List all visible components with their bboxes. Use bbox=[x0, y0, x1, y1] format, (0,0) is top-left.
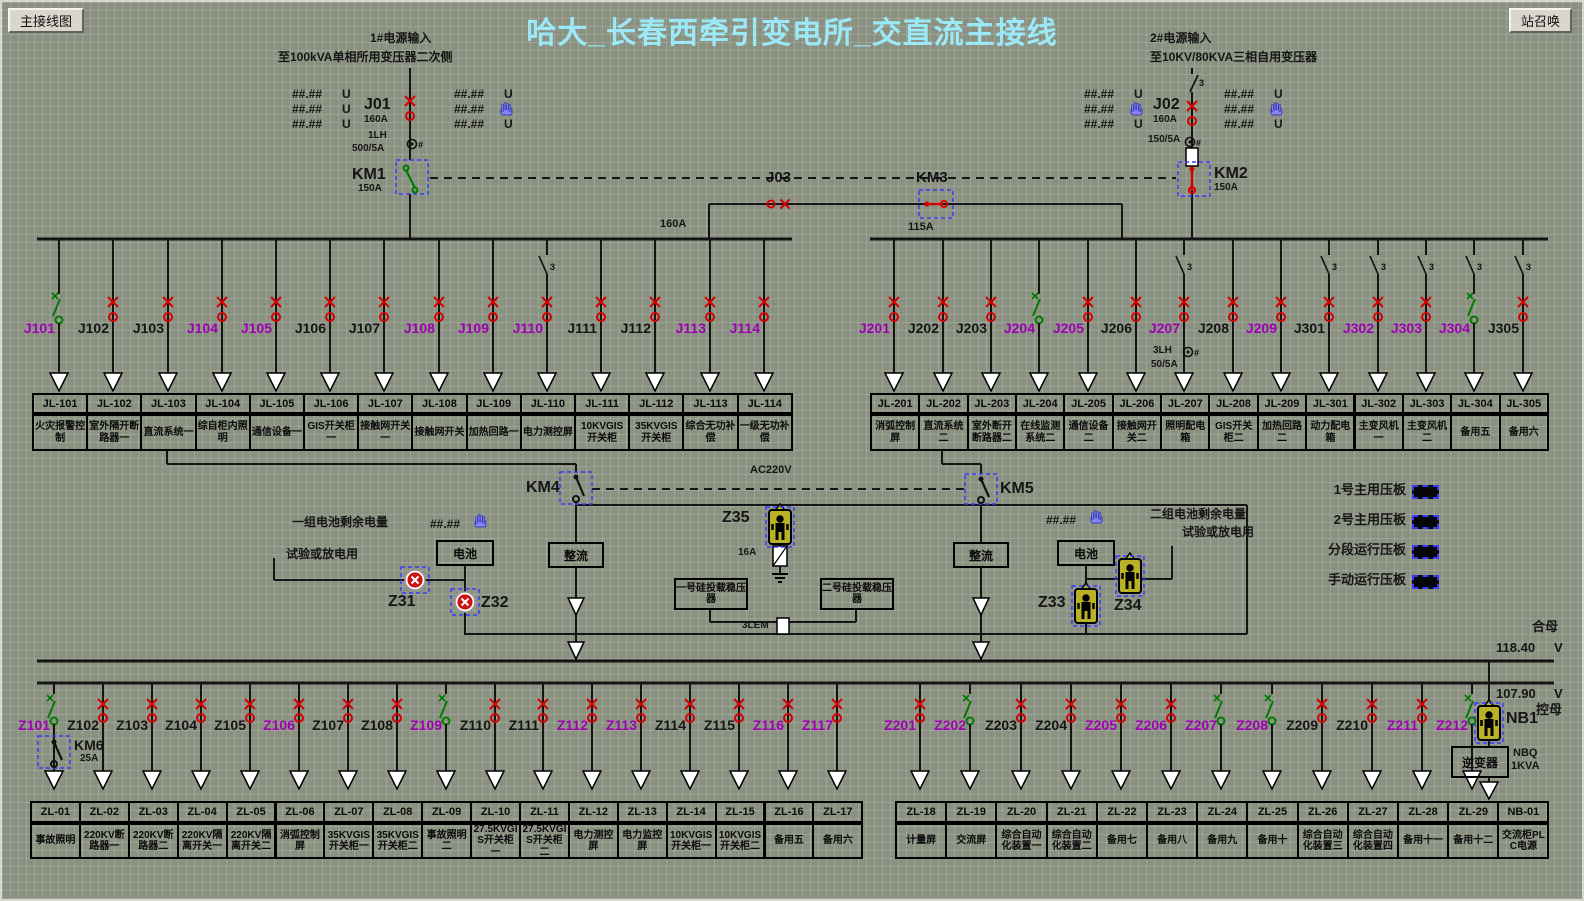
switch-J304[interactable] bbox=[1467, 293, 1478, 324]
load-arrow bbox=[538, 373, 556, 391]
load-arrow bbox=[1465, 373, 1483, 391]
load-arrow bbox=[388, 771, 406, 789]
j02-disconnector[interactable]: 3 bbox=[1190, 75, 1204, 92]
load-arrow bbox=[646, 373, 664, 391]
disconnector-J207[interactable]: 3 bbox=[1176, 256, 1192, 274]
load-arrow bbox=[1012, 771, 1030, 789]
disconnector-J305[interactable]: 3 bbox=[1515, 256, 1531, 274]
load-arrow bbox=[1369, 373, 1387, 391]
km1-switch[interactable] bbox=[396, 160, 428, 194]
ct-hash: # bbox=[1196, 138, 1201, 148]
load-arrow bbox=[1079, 373, 1097, 391]
hand-icon bbox=[1131, 103, 1142, 116]
z32-tag-icon[interactable] bbox=[451, 589, 479, 615]
load-arrow bbox=[592, 373, 610, 391]
disconnector-J110[interactable]: 3 bbox=[539, 256, 555, 274]
load-arrow bbox=[339, 771, 357, 789]
load-arrow bbox=[192, 771, 210, 789]
load-arrow bbox=[50, 373, 68, 391]
ct-hash: # bbox=[418, 140, 423, 150]
hand-icon bbox=[1091, 511, 1102, 524]
load-arrow bbox=[375, 373, 393, 391]
phase3-marker: 3 bbox=[1187, 262, 1192, 272]
load-arrow bbox=[1514, 373, 1532, 391]
load-arrow bbox=[1062, 771, 1080, 789]
switch-J101[interactable] bbox=[52, 293, 63, 324]
load-arrow bbox=[1224, 373, 1242, 391]
switch-Z202[interactable] bbox=[963, 695, 974, 725]
load-arrow bbox=[241, 771, 259, 789]
page-title: 哈大_长春西牵引变电所_交直流主接线 bbox=[2, 8, 1582, 52]
z34-person-icon[interactable] bbox=[1116, 553, 1144, 596]
hmi-canvas: 主接线图 哈大_长春西牵引变电所_交直流主接线 站召唤 #3#33#33333 … bbox=[0, 0, 1584, 901]
load-arrow bbox=[430, 373, 448, 391]
load-arrow bbox=[1030, 373, 1048, 391]
switch-J204[interactable] bbox=[1032, 293, 1043, 324]
load-arrow bbox=[1313, 771, 1331, 789]
km5-switch[interactable] bbox=[965, 474, 997, 504]
load-arrow bbox=[730, 771, 748, 789]
load-arrow bbox=[437, 771, 455, 789]
load-arrow bbox=[911, 771, 929, 789]
switch-Z101[interactable] bbox=[47, 695, 58, 725]
disconnector-J304[interactable]: 3 bbox=[1466, 256, 1482, 274]
ct-3lh-icon: # bbox=[1184, 348, 1200, 359]
load-arrow bbox=[1212, 771, 1230, 789]
z31-tag-icon[interactable] bbox=[401, 567, 429, 593]
switch-Z109[interactable] bbox=[439, 695, 450, 725]
phase3-marker: 3 bbox=[1199, 78, 1204, 88]
ct2-icon: # bbox=[1186, 138, 1202, 149]
switch-Z207[interactable] bbox=[1214, 695, 1225, 725]
load-arrow bbox=[45, 771, 63, 789]
load-arrow bbox=[321, 373, 339, 391]
km4-switch[interactable] bbox=[560, 472, 592, 504]
load-arrow bbox=[583, 771, 601, 789]
load-arrow bbox=[1413, 771, 1431, 789]
load-arrow bbox=[934, 373, 952, 391]
hand-icon bbox=[1271, 103, 1282, 116]
load-arrow bbox=[961, 771, 979, 789]
load-arrow bbox=[534, 771, 552, 789]
load-arrow bbox=[104, 373, 122, 391]
load-arrow bbox=[1175, 373, 1193, 391]
hand-icon bbox=[475, 515, 486, 528]
wiring-layer: #3#33#33333 bbox=[2, 2, 1584, 901]
disconnector-J301[interactable]: 3 bbox=[1321, 256, 1337, 274]
load-arrow bbox=[143, 771, 161, 789]
km2-switch[interactable] bbox=[1178, 162, 1210, 196]
phase3-marker: 3 bbox=[1526, 262, 1531, 272]
station-call-button[interactable]: 站召唤 bbox=[1509, 8, 1572, 33]
phase3-marker: 3 bbox=[550, 262, 555, 272]
z35-person-icon[interactable] bbox=[766, 504, 794, 547]
load-arrow bbox=[290, 771, 308, 789]
load-arrow bbox=[1263, 771, 1281, 789]
load-arrow bbox=[486, 771, 504, 789]
hand-icon bbox=[501, 103, 512, 116]
ct-hash: # bbox=[1194, 348, 1199, 358]
load-arrow bbox=[1272, 373, 1290, 391]
load-arrow bbox=[94, 771, 112, 789]
load-arrow bbox=[159, 373, 177, 391]
load-arrow bbox=[484, 373, 502, 391]
load-arrow bbox=[701, 373, 719, 391]
load-arrow bbox=[681, 771, 699, 789]
load-arrow bbox=[1112, 771, 1130, 789]
load-arrow bbox=[1463, 771, 1481, 789]
fuse-icon bbox=[1186, 148, 1198, 166]
wiring bbox=[37, 68, 1554, 799]
load-arrow bbox=[828, 771, 846, 789]
z33-person-icon[interactable] bbox=[1072, 583, 1100, 626]
load-arrow bbox=[982, 373, 1000, 391]
load-arrow bbox=[885, 373, 903, 391]
load-arrow bbox=[1320, 373, 1338, 391]
nb1-person-icon[interactable] bbox=[1475, 700, 1503, 743]
phase3-marker: 3 bbox=[1381, 262, 1386, 272]
load-arrow bbox=[213, 373, 231, 391]
disconnector-J302[interactable]: 3 bbox=[1370, 256, 1386, 274]
switch-Z208[interactable] bbox=[1265, 695, 1276, 725]
load-arrow bbox=[755, 373, 773, 391]
load-arrow bbox=[1363, 771, 1381, 789]
phase3-marker: 3 bbox=[1477, 262, 1482, 272]
load-arrow bbox=[1162, 771, 1180, 789]
load-arrow bbox=[1417, 373, 1435, 391]
load-arrow bbox=[267, 373, 285, 391]
switch-Z212[interactable] bbox=[1465, 695, 1476, 725]
load-arrow bbox=[632, 771, 650, 789]
load-arrow bbox=[1127, 373, 1145, 391]
disconnector-J303[interactable]: 3 bbox=[1418, 256, 1434, 274]
phase3-marker: 3 bbox=[1332, 262, 1337, 272]
phase3-marker: 3 bbox=[1429, 262, 1434, 272]
load-arrow bbox=[779, 771, 797, 789]
